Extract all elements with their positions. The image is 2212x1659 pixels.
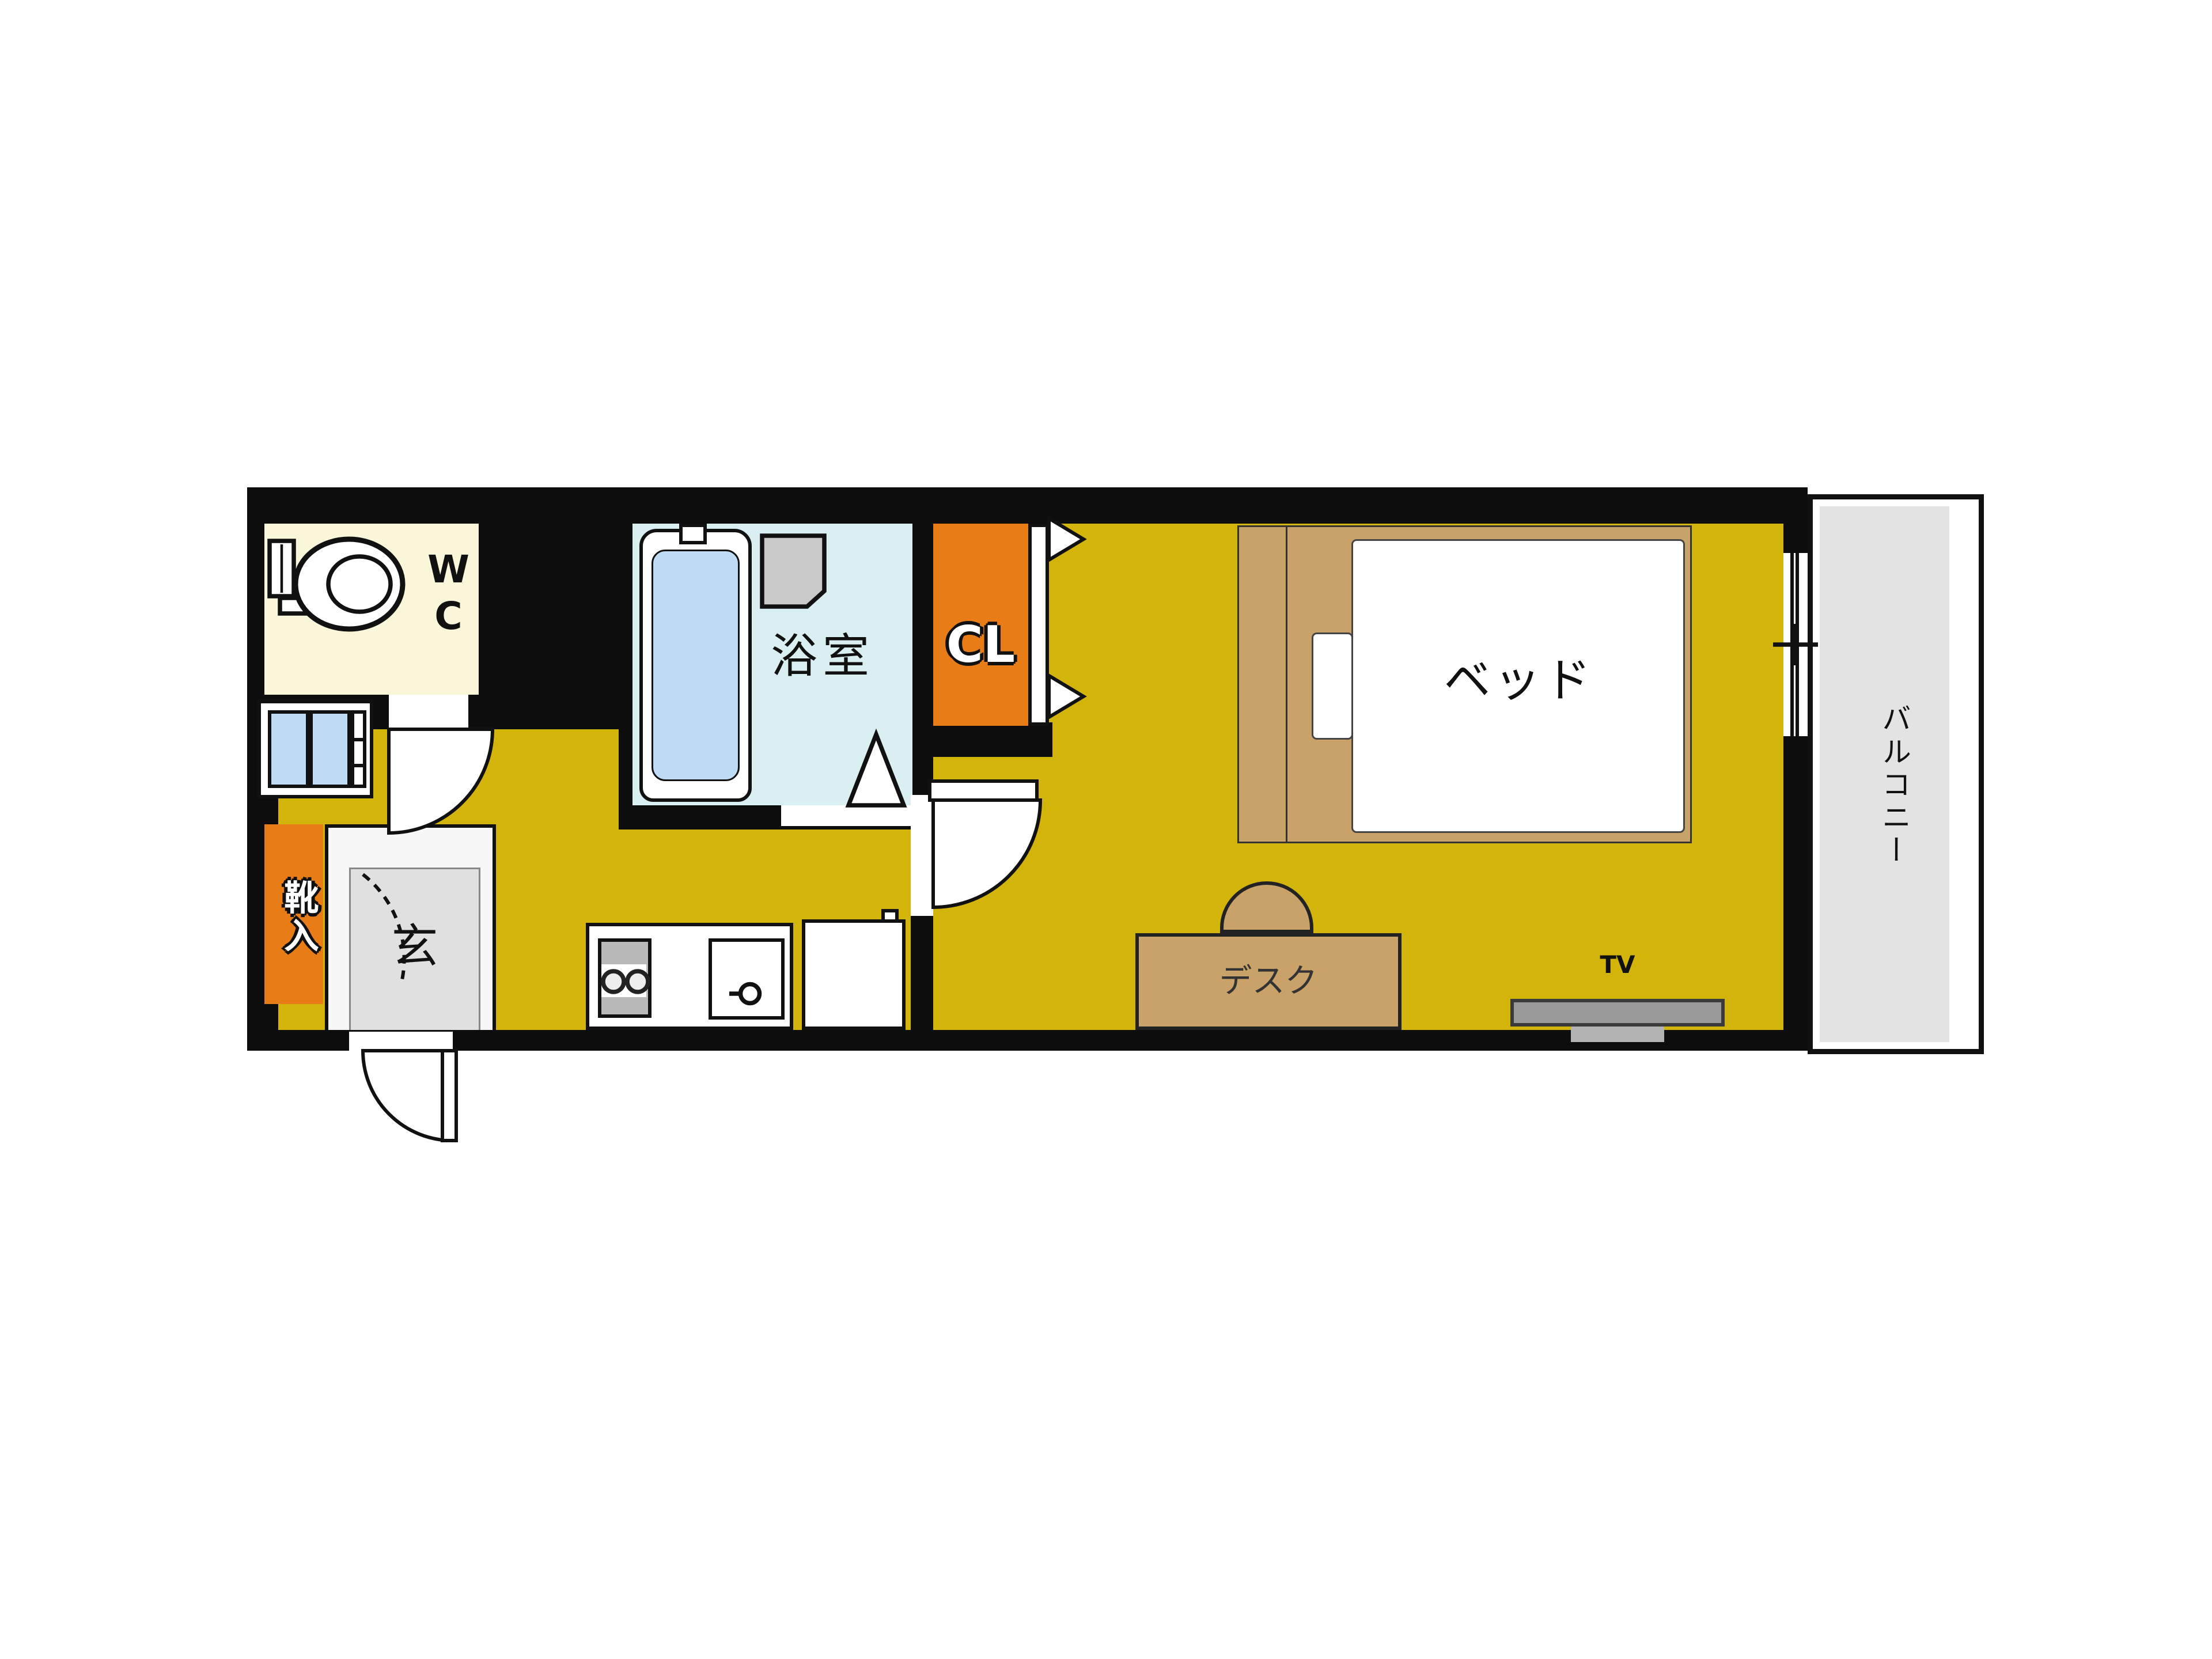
floor-plan: WC 浴室 CL 靴入 玄 デスク TV	[0, 0, 2212, 1659]
desk-label: デスク	[1161, 964, 1376, 1001]
refrigerator	[802, 919, 906, 1030]
entrance-label: 玄	[370, 923, 460, 974]
stove-icon	[598, 938, 652, 1018]
bathtub-tap	[679, 524, 707, 544]
bed-pillow	[1312, 632, 1353, 740]
entrance-door-arc	[363, 1051, 453, 1141]
window-side-panes	[351, 710, 366, 788]
balcony-label: バルコニー	[1863, 636, 1908, 933]
kitchen-sink	[709, 938, 785, 1020]
tv-label: TV	[1566, 954, 1669, 980]
entrance-door-leaf	[442, 1051, 456, 1141]
window-pane-icon	[309, 710, 351, 788]
bathroom-label: 浴室	[736, 632, 909, 684]
bathtub-basin	[652, 550, 740, 781]
tv-stand	[1571, 1027, 1664, 1042]
left-window	[257, 700, 373, 798]
shoe-cabinet-label: 靴入	[273, 855, 318, 980]
closet-folding-door	[1028, 524, 1049, 726]
wc-label: WC	[420, 536, 468, 657]
window-pane-icon	[268, 710, 309, 788]
bed-label: ベッド	[1393, 657, 1645, 708]
entrance-door-sill	[349, 1032, 453, 1051]
bed-headboard-line	[1286, 525, 1287, 843]
bathroom-door-sill	[781, 805, 912, 826]
room-door-gap	[911, 795, 933, 916]
wc-door-gap	[389, 695, 468, 729]
balcony-window	[1783, 553, 1808, 736]
refrigerator-hinge	[881, 909, 899, 923]
tv	[1510, 999, 1725, 1027]
closet-label: CL	[933, 619, 1028, 674]
